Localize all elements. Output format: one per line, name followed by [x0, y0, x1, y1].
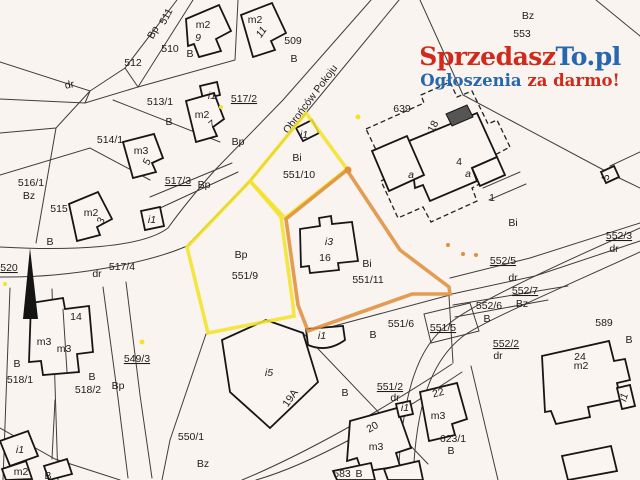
- map-label: 511: [157, 6, 176, 27]
- map-label: 589: [595, 317, 613, 329]
- map-label: Bi: [292, 152, 301, 164]
- map-label: B: [483, 313, 490, 325]
- map-label: a: [465, 168, 471, 180]
- map-label: B: [88, 371, 95, 383]
- map-label: 552/6: [476, 300, 502, 312]
- map-label: Bz: [522, 10, 534, 22]
- map-label: m2: [248, 14, 263, 26]
- highlighter-dot: [140, 340, 145, 345]
- map-label: B: [355, 468, 362, 480]
- map-label: dr: [493, 350, 503, 362]
- map-label: m2: [196, 19, 211, 31]
- map-label: dr: [390, 392, 400, 404]
- map-label: B: [46, 236, 53, 248]
- map-label: m3: [431, 410, 446, 422]
- map-label: B: [341, 387, 348, 399]
- map-label: 551/10: [283, 169, 315, 181]
- map-label: 1: [489, 192, 495, 204]
- map-label: 552/2: [493, 338, 519, 350]
- map-label: m3: [369, 441, 384, 453]
- highlighter-dot: [461, 252, 465, 256]
- map-label: B: [186, 48, 193, 60]
- map-label: 510: [161, 43, 179, 55]
- map-label: i5: [265, 367, 273, 379]
- map-label: dr: [92, 268, 102, 280]
- map-label: 550/1: [178, 431, 204, 443]
- building-24-m2: [542, 341, 630, 424]
- map-label: B: [13, 358, 20, 370]
- map-label: B: [369, 329, 376, 341]
- map-label: 517/3: [165, 175, 191, 187]
- map-label: B: [625, 334, 632, 346]
- map-label: B: [165, 116, 172, 128]
- highlighter-dot: [219, 105, 223, 109]
- map-label: 513/1: [147, 96, 173, 108]
- highlighter-dot: [3, 282, 7, 286]
- map-label: Bi: [362, 258, 371, 270]
- map-label: 4: [456, 156, 462, 168]
- map-label: i3: [325, 236, 333, 248]
- map-label: dr: [508, 272, 518, 284]
- map-label: m3: [134, 145, 149, 157]
- map-label: 512: [124, 57, 142, 69]
- highlighter-dot: [474, 253, 478, 257]
- map-label: Bz: [23, 190, 35, 202]
- map-label: 549/3: [124, 353, 150, 365]
- map-label: 516/1: [18, 177, 44, 189]
- map-label: 517/2: [231, 93, 257, 105]
- map-label: B: [44, 470, 51, 480]
- map-label: m2: [195, 109, 210, 121]
- map-label: m3: [57, 343, 72, 355]
- map-label: 520: [0, 262, 18, 274]
- map-label: 551/6: [388, 318, 414, 330]
- building-20-m3: [347, 408, 411, 472]
- map-label: Bz: [516, 298, 528, 310]
- map-symbol-triangle: [23, 248, 38, 319]
- map-label: 14: [70, 311, 82, 323]
- map-label: m2: [14, 466, 29, 478]
- map-label: 518/1: [7, 374, 33, 386]
- map-label: i1: [401, 402, 409, 414]
- map-label: 9: [195, 32, 201, 44]
- map-label: 551/11: [352, 274, 383, 286]
- map-label: 514/1: [97, 134, 123, 146]
- map-label: 551/5: [430, 322, 456, 334]
- map-label: B: [290, 53, 297, 65]
- map-label: 517/4: [109, 261, 135, 273]
- highlighter-dot: [345, 167, 352, 174]
- highlighter-dot: [356, 115, 361, 120]
- map-label: a: [408, 169, 414, 181]
- map-label: i1: [318, 330, 326, 342]
- map-label: 623/1: [440, 433, 466, 445]
- map-label: Bp: [235, 249, 248, 261]
- map-label: m3: [37, 336, 52, 348]
- map-label: Bp: [232, 136, 245, 148]
- map-label: 16: [319, 252, 331, 264]
- map-label: 552/7: [512, 285, 538, 297]
- map-label: 639: [393, 103, 411, 115]
- map-label: 583: [333, 468, 351, 480]
- map-label: 515: [50, 203, 68, 215]
- map-label: 509: [284, 35, 302, 47]
- listing-map-image: 511Bpm29510B512drm211509BBz553i1517/2513…: [0, 0, 640, 480]
- map-label: 518/2: [75, 384, 101, 396]
- map-label: i1: [300, 129, 308, 141]
- map-label: Bp: [112, 380, 125, 392]
- map-label: dr: [64, 78, 76, 92]
- map-label: B: [447, 445, 454, 457]
- map-label: Bz: [197, 458, 209, 470]
- map-label: i1: [148, 214, 156, 226]
- highlighter-dot: [446, 243, 450, 247]
- cadastral-map: 511Bpm29510B512drm211509BBz553i1517/2513…: [0, 0, 640, 480]
- map-label: 553: [513, 28, 531, 40]
- map-label: Bp: [198, 179, 211, 191]
- map-label: m2: [574, 360, 589, 372]
- map-label: 551/9: [232, 270, 258, 282]
- map-label: Bi: [508, 217, 517, 229]
- map-label: 552/3: [606, 230, 632, 242]
- map-label: dr: [609, 243, 619, 255]
- building-bottom-right: [562, 446, 617, 480]
- buildings: [0, 3, 635, 480]
- map-label: i1: [208, 90, 216, 102]
- map-label: 552/5: [490, 255, 516, 267]
- map-label: i1: [16, 444, 24, 456]
